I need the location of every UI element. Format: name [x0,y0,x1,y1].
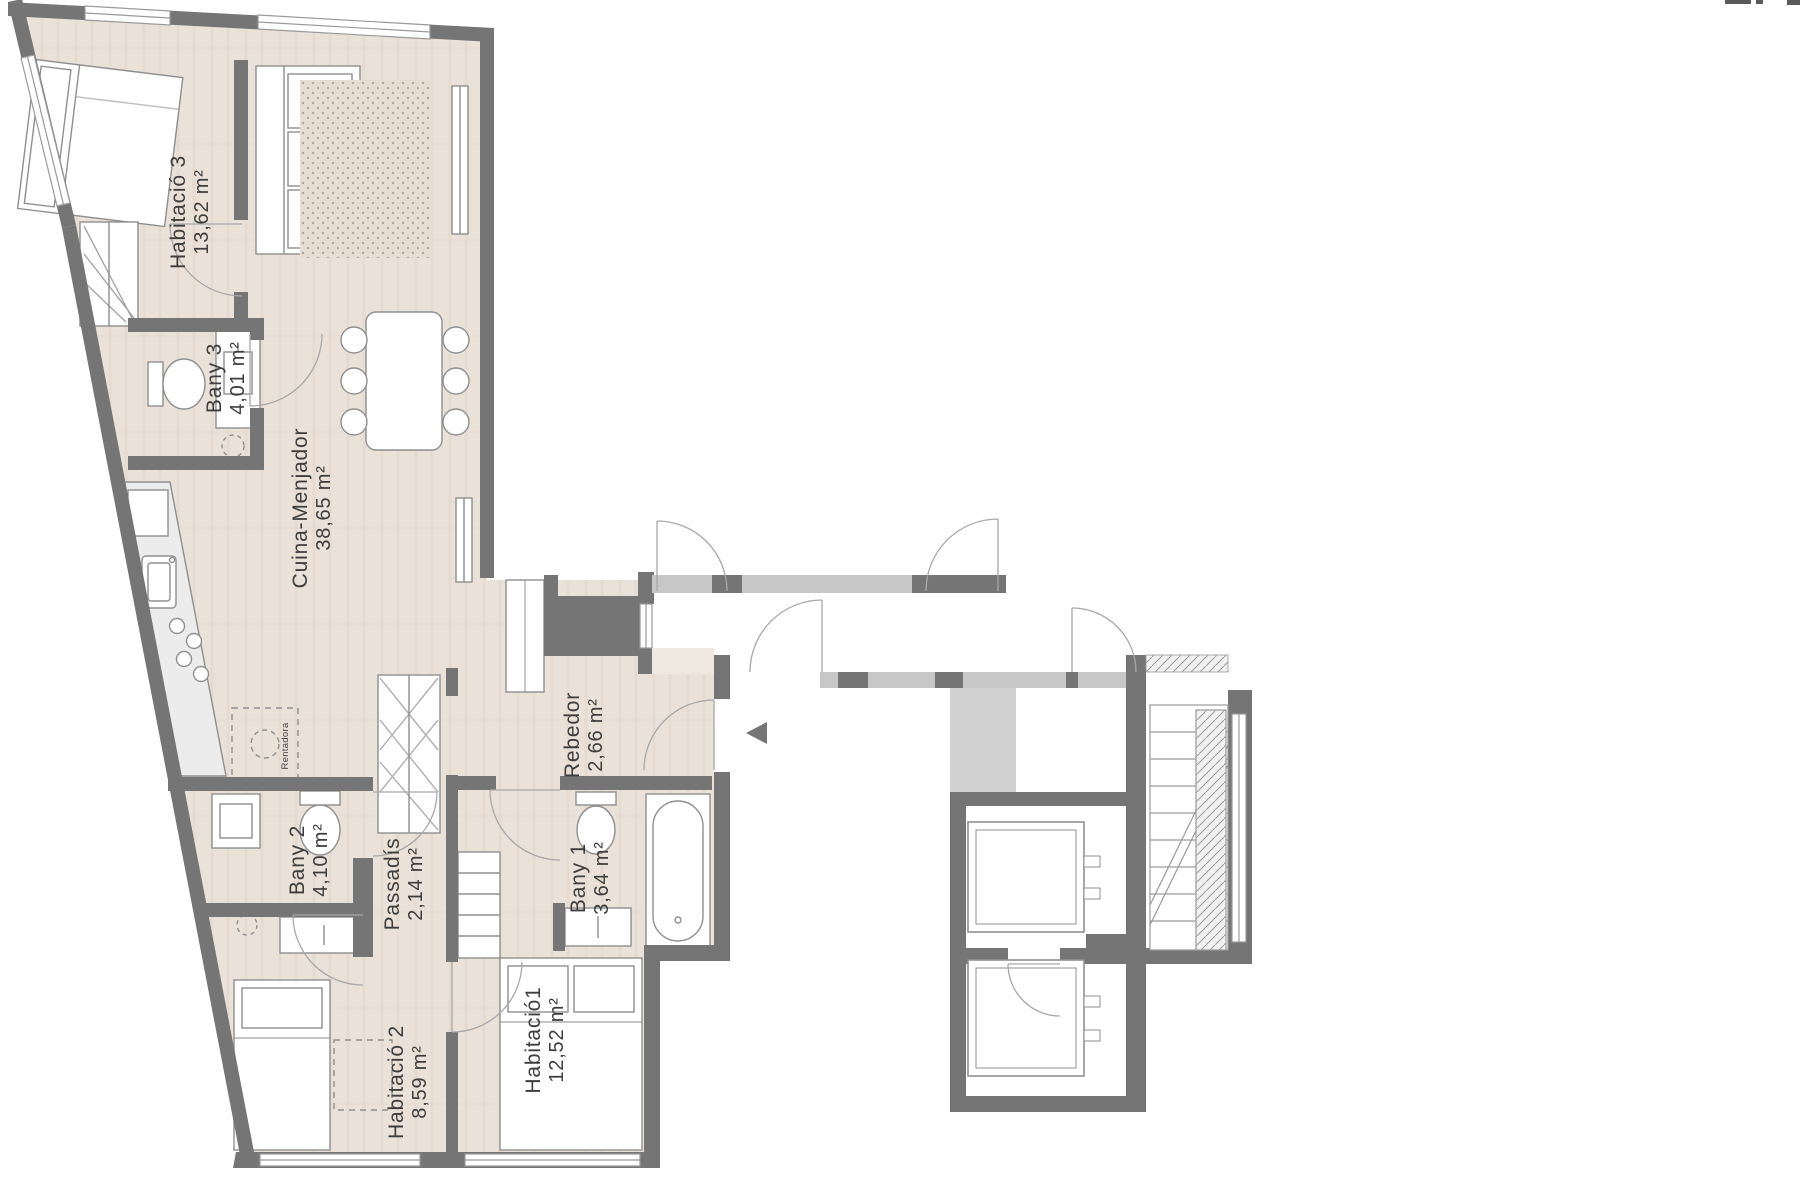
svg-text:Bany 3: Bany 3 [203,343,226,413]
floor-plan-page: Habitació 3 13,62 m² Bany 3 4,01 m² Cuin… [0,0,1800,1200]
entrance-arrow-icon [746,722,767,744]
entry-closet [506,580,544,692]
window-bottom-1 [260,1154,420,1166]
svg-text:Passadís: Passadís [381,838,404,931]
radiator [456,498,472,582]
svg-text:12,52 m²: 12,52 m² [546,997,568,1082]
window-bottom-2 [465,1154,640,1166]
svg-text:4,01 m²: 4,01 m² [227,341,249,414]
svg-text:Rentadora: Rentadora [280,722,291,769]
chair [443,368,469,394]
svg-text:2,14 m²: 2,14 m² [405,847,427,920]
stair-cut-wall [1196,710,1226,950]
chair [443,327,469,353]
wardrobe-passadis [378,675,440,833]
svg-text:Habitació 3: Habitació 3 [167,155,190,269]
svg-text:13,62 m²: 13,62 m² [191,169,213,254]
entry-threshold [652,648,714,674]
svg-text:3,64 m²: 3,64 m² [591,841,613,914]
logo-fragment [1725,0,1800,5]
svg-text:Cuina-Menjador: Cuina-Menjador [289,428,312,589]
community-area [652,575,1252,1112]
svg-text:Habitació1: Habitació1 [522,986,545,1093]
svg-text:Rebedor: Rebedor [561,692,584,778]
stairwell-top-wall [1146,655,1228,672]
svg-text:2,66 m²: 2,66 m² [585,698,607,771]
toilet-bany-3 [148,359,205,409]
floor-plan-drawing: Habitació 3 13,62 m² Bany 3 4,01 m² Cuin… [0,0,1800,1200]
label-rentadora: Rentadora [280,722,291,769]
wardrobe-habitacio-1 [458,852,500,958]
chair [341,368,367,394]
chair [341,409,367,435]
door-corridor-left [750,600,822,672]
chair [341,327,367,353]
svg-text:8,59 m²: 8,59 m² [409,1045,431,1118]
svg-text:4,10 m²: 4,10 m² [310,823,332,896]
entry-sidelight [640,604,652,648]
svg-text:38,65 m²: 38,65 m² [313,465,335,550]
svg-text:Bany 1: Bany 1 [567,843,590,913]
lift-lobby-wall [950,688,1016,794]
vanity-bany-2 [212,794,260,848]
bathtub [646,794,710,948]
staircase [1150,705,1246,950]
radiator [452,86,468,234]
dining-table [341,312,469,450]
rug [300,80,432,258]
chair [443,409,469,435]
wall-right-living [480,28,494,578]
svg-text:Bany 2: Bany 2 [286,825,309,895]
svg-text:Habitació 2: Habitació 2 [385,1025,408,1139]
